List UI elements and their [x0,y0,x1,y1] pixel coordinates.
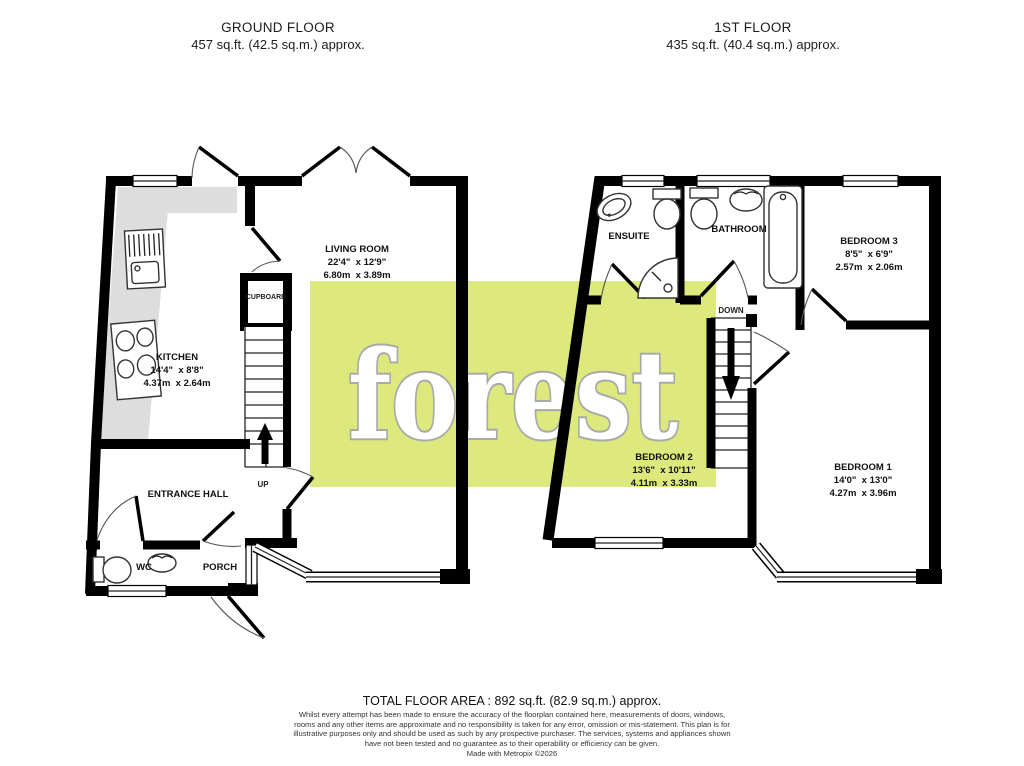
floorplan-canvas: KITCHEN 14'4" x 8'8" 4.37m x 2.64m LIVIN… [0,0,1024,766]
disclaimer-text: Whilst every attempt has been made to en… [293,710,730,748]
bedroom3-label: BEDROOM 3 [840,236,898,247]
gf-kitchen-door [252,228,280,272]
kitchen-dims-imperial: 14'4" x 8'8" [150,365,203,376]
bedroom3-dims-imperial: 8'5" x 6'9" [845,249,893,260]
bedroom2-dims-metric: 4.11m x 3.33m [631,478,698,489]
porch-label: PORCH [203,562,237,573]
bedroom2-dims-imperial: 13'6" x 10'11" [632,465,695,476]
up-label: UP [257,480,269,489]
bathroom-toilet-icon [690,188,718,229]
ff-bay-window [756,546,942,584]
ground-floor-plan: KITCHEN 14'4" x 8'8" 4.37m x 2.64m LIVIN… [86,147,470,638]
shower-icon [638,258,678,298]
kitchen-counter [100,187,237,441]
ff-bed3-window [843,176,898,187]
ff-ensuite-window [622,176,664,187]
gf-top-window [133,176,177,187]
ff-left-wall [548,177,600,540]
bedroom1-dims-imperial: 14'0" x 13'0" [834,475,892,486]
living-room-label: LIVING ROOM [325,244,389,255]
entrance-hall-label: ENTRANCE HALL [148,489,229,500]
ff-bed2-window [595,538,663,549]
ensuite-toilet-icon [653,189,681,229]
bathtub-icon [764,186,802,288]
gf-bay-window [255,547,470,584]
gf-back-door [192,147,238,178]
kitchen-dims-metric: 4.37m x 2.64m [143,378,210,389]
kitchen-sink-icon [124,229,165,289]
bedroom3-dims-metric: 2.57m x 2.06m [835,262,902,273]
total-floor-area: TOTAL FLOOR AREA : 892 sq.ft. (82.9 sq.m… [0,694,1024,708]
bedroom1-dims-metric: 4.27m x 3.96m [829,488,896,499]
sink-icon [148,554,176,572]
cupboard-label: CUPBOARD [246,294,286,301]
gf-french-doors [302,147,410,176]
bedroom2-label: BEDROOM 2 [635,452,693,463]
first-floor-plan: ENSUITE BATHROOM BEDROOM 3 8'5" x 6'9" 2… [548,176,942,585]
gf-wc-door [97,496,143,541]
metropix-credit: Made with Metropix ©2026 [292,749,732,759]
cupboard-box [244,277,288,327]
gf-porch-inner-door [203,512,241,546]
gf-wc-window [108,586,166,597]
wc-label: WC [136,562,152,573]
ff-bathroom-window [697,176,770,187]
floorplan-page: GROUND FLOOR 457 sq.ft. (42.5 sq.m.) app… [0,0,1024,766]
ff-bed1-door [754,332,789,384]
down-label: DOWN [718,306,744,315]
gf-living-door [287,468,313,509]
disclaimer: Whilst every attempt has been made to en… [292,710,732,759]
kitchen-label: KITCHEN [156,352,198,363]
ff-bed3-door [801,289,846,325]
living-room-dims-imperial: 22'4" x 12'9" [328,257,386,268]
ff-bathroom-door [701,261,748,298]
bathroom-sink-icon [730,189,762,211]
bedroom1-label: BEDROOM 1 [834,462,892,473]
toilet-icon [93,557,131,583]
ensuite-label: ENSUITE [608,231,649,242]
bathroom-label: BATHROOM [711,224,766,235]
living-room-dims-metric: 6.80m x 3.89m [323,270,390,281]
gf-front-door [211,596,264,638]
